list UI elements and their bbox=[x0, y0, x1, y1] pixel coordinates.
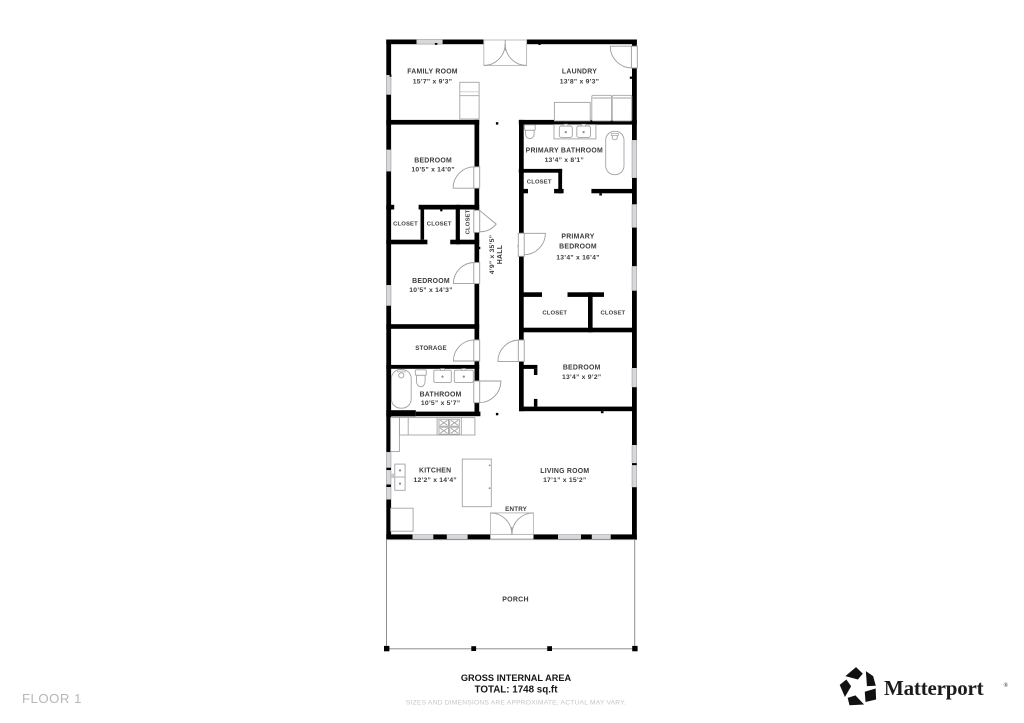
svg-text:LAUNDRY: LAUNDRY bbox=[562, 69, 597, 76]
svg-text:LIVING ROOM: LIVING ROOM bbox=[540, 468, 589, 475]
svg-text:10’5” x 5’7”: 10’5” x 5’7” bbox=[421, 400, 460, 407]
svg-text:12’2” x 14’4”: 12’2” x 14’4” bbox=[413, 477, 456, 484]
svg-text:PRIMARY BATHROOM: PRIMARY BATHROOM bbox=[526, 148, 603, 155]
svg-text:13’4” x 9’2”: 13’4” x 9’2” bbox=[562, 374, 601, 381]
svg-text:CLOSET: CLOSET bbox=[527, 179, 552, 185]
svg-text:CLOSET: CLOSET bbox=[427, 222, 452, 228]
svg-text:®: ® bbox=[1004, 682, 1009, 689]
svg-text:GROSS INTERNAL AREA: GROSS INTERNAL AREA bbox=[461, 673, 572, 683]
svg-text:CLOSET: CLOSET bbox=[601, 311, 626, 317]
svg-text:SIZES AND DIMENSIONS ARE APPRO: SIZES AND DIMENSIONS ARE APPROXIMATE, AC… bbox=[406, 700, 626, 707]
svg-text:CLOSET: CLOSET bbox=[466, 209, 472, 234]
svg-text:BEDROOM: BEDROOM bbox=[559, 243, 597, 250]
svg-text:13’8” x 9’3”: 13’8” x 9’3” bbox=[560, 78, 599, 85]
svg-text:CLOSET: CLOSET bbox=[542, 311, 567, 317]
svg-text:FLOOR 1: FLOOR 1 bbox=[22, 691, 82, 706]
svg-text:KITCHEN: KITCHEN bbox=[419, 467, 451, 474]
svg-text:ENTRY: ENTRY bbox=[505, 506, 528, 513]
svg-text:PORCH: PORCH bbox=[502, 597, 529, 604]
svg-text:17’1” x 15’2”: 17’1” x 15’2” bbox=[543, 477, 586, 484]
svg-text:4’9” x 35’5”: 4’9” x 35’5” bbox=[489, 235, 496, 274]
svg-text:13’4” x 8’1”: 13’4” x 8’1” bbox=[545, 157, 584, 164]
svg-text:Matterport: Matterport bbox=[884, 676, 984, 700]
svg-text:PRIMARY: PRIMARY bbox=[561, 233, 594, 240]
svg-text:BEDROOM: BEDROOM bbox=[414, 157, 452, 164]
svg-text:10’5” x 14’3”: 10’5” x 14’3” bbox=[409, 287, 452, 294]
svg-text:BEDROOM: BEDROOM bbox=[412, 278, 450, 285]
svg-text:BEDROOM: BEDROOM bbox=[563, 365, 601, 372]
svg-text:15’7” x 9’3”: 15’7” x 9’3” bbox=[413, 78, 452, 85]
svg-text:HALL: HALL bbox=[497, 245, 504, 264]
svg-text:BATHROOM: BATHROOM bbox=[420, 392, 462, 399]
svg-text:CLOSET: CLOSET bbox=[393, 222, 418, 228]
svg-text:STORAGE: STORAGE bbox=[415, 345, 447, 352]
svg-text:10’5” x 14’0”: 10’5” x 14’0” bbox=[411, 167, 454, 174]
svg-text:FAMILY ROOM: FAMILY ROOM bbox=[407, 69, 458, 76]
svg-text:TOTAL: 1748 sq.ft: TOTAL: 1748 sq.ft bbox=[475, 685, 559, 696]
svg-text:13’4” x 16’4”: 13’4” x 16’4” bbox=[556, 254, 599, 261]
